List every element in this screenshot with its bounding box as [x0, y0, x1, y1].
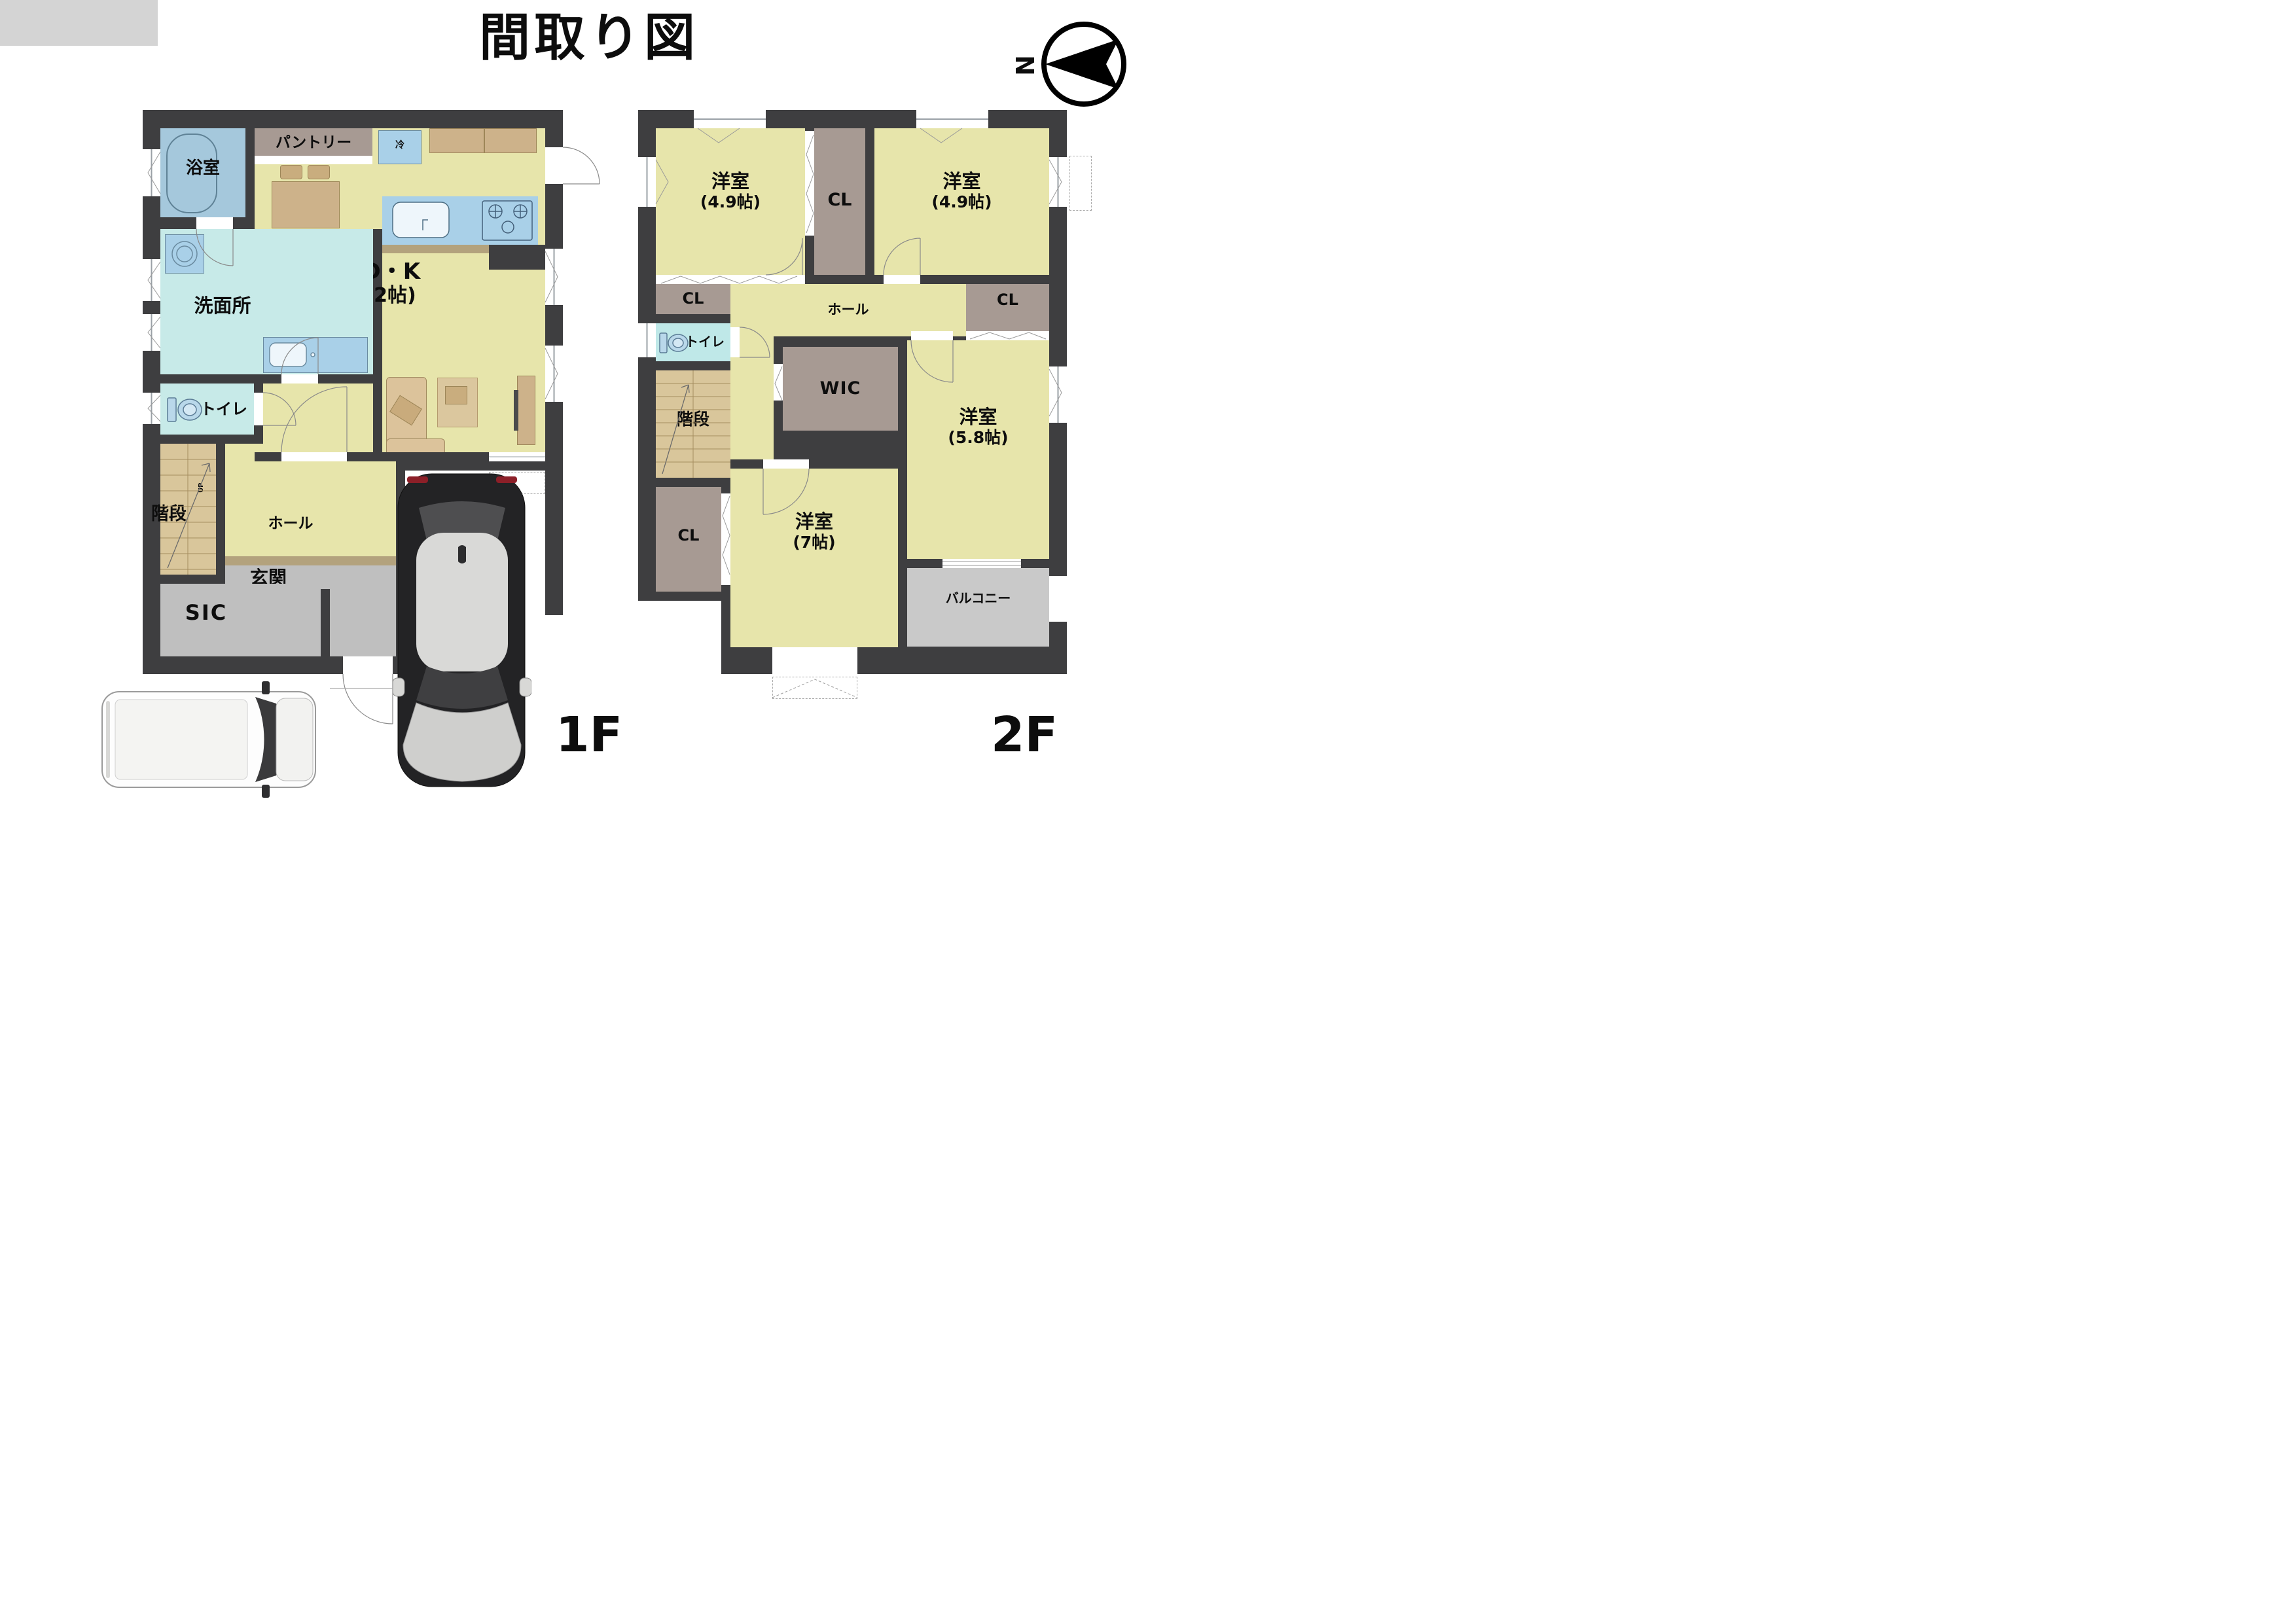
balcony-opening	[1049, 576, 1067, 622]
kitchen-counter-edge	[382, 245, 489, 253]
room-bedroom-ne-area: (4.9帖)	[874, 194, 1049, 211]
fridge-label: 冷	[378, 141, 422, 151]
hall-2f-label: ホール	[770, 302, 927, 317]
bedroom-ne-door	[884, 275, 920, 284]
kitchen-cabinet-right	[484, 128, 537, 153]
bedroom-ne-shutter-box	[1069, 156, 1092, 211]
cl-top-doors	[805, 131, 814, 236]
cl-bottom-doors	[721, 493, 730, 585]
room-cl-left-label: CL	[656, 291, 730, 307]
room-cl-right-label: CL	[966, 292, 1049, 308]
room-cl-top-label: CL	[814, 191, 865, 209]
pantry-door	[255, 156, 372, 164]
room-entrance	[330, 589, 396, 656]
bath-door	[196, 217, 233, 229]
stairs-2f-label: 階段	[656, 411, 730, 428]
living-table	[445, 386, 467, 404]
room-washroom-label: 洗面所	[160, 296, 285, 315]
bedroom-nw-window-w	[638, 157, 656, 207]
toilet-door-1f	[254, 393, 263, 425]
ldk-terrace-door	[489, 452, 545, 461]
room-bath-label: 浴室	[160, 160, 245, 177]
entrance-door-gap	[343, 656, 393, 674]
ldk-window-east-1	[545, 249, 563, 305]
floor2-label: 2F	[972, 710, 1077, 761]
dining-chair	[308, 165, 330, 179]
bedroom-ne-window	[916, 110, 988, 128]
wic-door	[774, 364, 783, 401]
hall-1f-label: ホール	[225, 516, 356, 531]
cl-right-doors	[966, 331, 1049, 340]
compass-icon	[1039, 20, 1128, 109]
bedroom-nw-window	[694, 110, 766, 128]
van-top-view	[98, 677, 324, 802]
ldk-hall-door	[281, 452, 347, 461]
washroom-window-2	[143, 314, 160, 351]
bedroom-ne-window-e	[1049, 157, 1067, 207]
washing-machine	[165, 234, 204, 274]
car-top-view	[393, 470, 531, 792]
tv	[514, 390, 518, 431]
balcony-label: バルコニー	[907, 592, 1049, 605]
washroom-window-1	[143, 259, 160, 301]
room-sic-label: SIC	[160, 602, 252, 624]
dining-chair	[280, 165, 302, 179]
kitchen-cabinet-left	[429, 128, 484, 153]
room-bedroom-s-area: (7帖)	[730, 534, 898, 551]
floor2-corner-notch	[638, 601, 721, 674]
room-wic-label: WIC	[783, 380, 898, 398]
kitchen-counter	[382, 196, 538, 245]
room-cl-bottom-label: CL	[656, 527, 721, 544]
balcony	[907, 568, 1049, 647]
bedroom-s-door	[763, 459, 809, 469]
bedroom-e-door	[911, 331, 953, 340]
room-bedroom-nw-label: 洋室	[656, 171, 805, 191]
stairs-1f-label: 階段	[131, 505, 207, 524]
bedroom-s-shutter-box	[772, 677, 857, 699]
toilet-window-1f	[143, 393, 160, 424]
bedroom-s-window	[772, 647, 857, 674]
stairs-up-label: UP	[198, 480, 206, 495]
page-title: 間取り図	[353, 12, 825, 65]
room-bedroom-ne-label: 洋室	[874, 171, 1049, 191]
room-bedroom-s	[730, 469, 898, 647]
balcony-door	[942, 559, 1021, 568]
room-bedroom-nw-area: (4.9帖)	[656, 194, 805, 211]
tv-board	[517, 376, 535, 445]
room-bedroom-e-label: 洋室	[907, 407, 1049, 427]
bedroom-nw-door	[766, 275, 802, 284]
compass-north-label: N	[1013, 52, 1039, 79]
floor1-label: 1F	[537, 710, 641, 761]
toilet-2f-door	[730, 327, 740, 357]
vanity-unit	[263, 337, 368, 373]
washroom-door	[281, 374, 318, 383]
ldk-window-east-2	[545, 346, 563, 402]
room-bedroom-e	[907, 340, 1049, 559]
bath-window	[143, 149, 160, 196]
hall-edge	[225, 556, 396, 565]
room-bedroom-s-label: 洋室	[730, 512, 898, 531]
room-bedroom-e-area: (5.8帖)	[907, 429, 1049, 446]
carport-wall-opening	[545, 615, 563, 674]
entrance-porch	[0, 0, 158, 46]
floorplan-page: 間取り図 N 浴室 パントリー L・D・K (17.2帖) 冷	[0, 0, 1148, 811]
bedroom-e-window	[1049, 366, 1067, 423]
ldk-east-door	[545, 147, 563, 184]
kitchen-wall-stub	[489, 245, 545, 270]
hall-1f	[225, 461, 396, 556]
compass	[1039, 20, 1128, 109]
room-pantry-label: パントリー	[255, 135, 372, 151]
dining-table	[272, 181, 340, 228]
toilet-2f-window	[638, 323, 656, 357]
hall-1f-upper	[263, 383, 373, 452]
